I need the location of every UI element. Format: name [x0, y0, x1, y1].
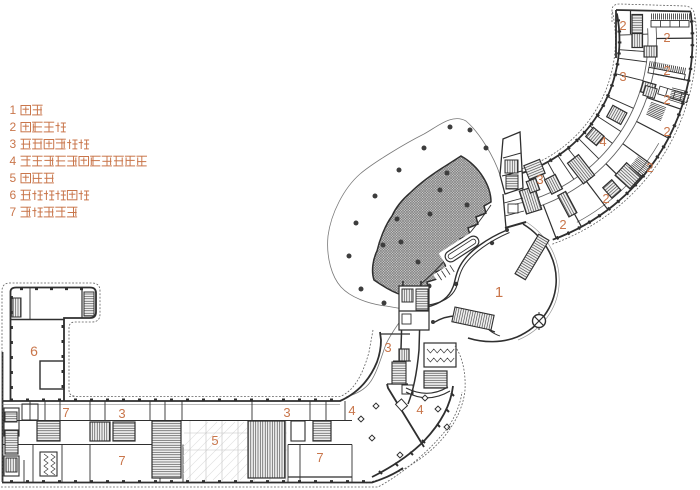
svg-text:4: 4: [599, 134, 606, 149]
svg-text:1: 1: [495, 284, 503, 301]
svg-text:3: 3: [384, 340, 391, 355]
svg-text:1: 1: [10, 103, 17, 117]
svg-text:2: 2: [10, 120, 17, 134]
svg-text:2: 2: [663, 124, 670, 139]
svg-text:6: 6: [30, 343, 38, 359]
svg-text:3: 3: [10, 137, 17, 151]
svg-text:2: 2: [663, 92, 670, 107]
svg-text:3: 3: [536, 172, 543, 187]
svg-text:2: 2: [602, 191, 609, 206]
svg-text:2: 2: [559, 217, 566, 232]
svg-text:2: 2: [663, 63, 670, 78]
svg-text:7: 7: [62, 405, 69, 420]
svg-text:5: 5: [211, 433, 218, 448]
svg-text:7: 7: [118, 453, 125, 468]
svg-text:2: 2: [646, 160, 653, 175]
svg-text:3: 3: [118, 406, 125, 421]
svg-text:3: 3: [619, 69, 626, 84]
svg-text:4: 4: [10, 154, 17, 168]
svg-text:4: 4: [416, 402, 423, 417]
svg-text:2: 2: [663, 30, 670, 45]
svg-text:5: 5: [10, 171, 17, 185]
svg-text:3: 3: [283, 405, 290, 420]
svg-text:6: 6: [10, 188, 17, 202]
svg-text:2: 2: [619, 18, 626, 33]
svg-text:4: 4: [348, 403, 355, 418]
svg-text:7: 7: [10, 205, 17, 219]
svg-text:7: 7: [316, 450, 323, 465]
